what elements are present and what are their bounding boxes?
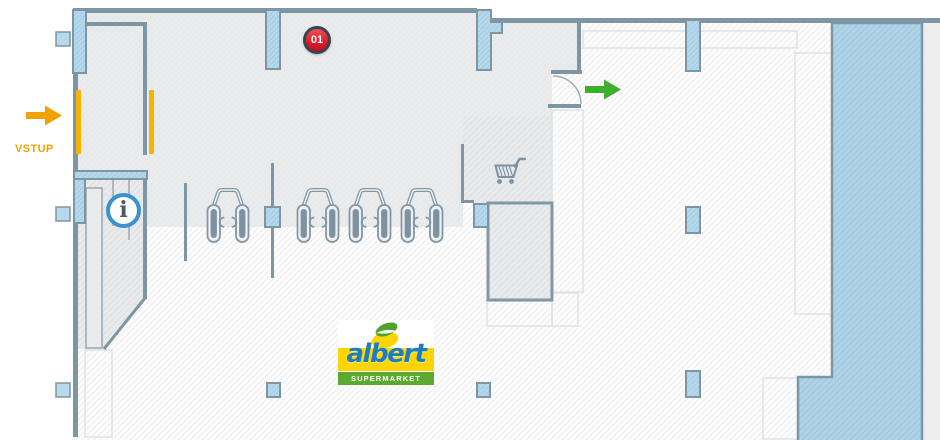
info-desk-wall	[143, 179, 147, 299]
exit-door-wall	[577, 23, 581, 71]
info-desk-wall-blue	[74, 171, 147, 179]
exit-door-stub-bottom	[548, 104, 581, 108]
structural-pillar	[686, 20, 700, 71]
cart-zone	[463, 117, 552, 203]
exterior-columns	[56, 32, 70, 397]
entrance-label: VSTUP	[15, 143, 75, 155]
structural-pillar	[474, 204, 488, 227]
structural-pillar	[477, 383, 490, 397]
logo-tagline-text: SUPERMARKET	[338, 372, 434, 385]
logo-brand-text: albert	[338, 339, 434, 369]
structural-pillar	[73, 10, 86, 73]
vestibule-wall-top	[84, 22, 146, 26]
structural-pillar	[686, 207, 700, 233]
wall-top-right	[490, 18, 940, 23]
albert-logo: albert SUPERMARKET	[338, 320, 434, 386]
floorplan-canvas	[0, 0, 940, 440]
vestibule-wall-right	[143, 22, 147, 155]
info-desk-counter	[86, 188, 102, 348]
structural-pillar	[267, 383, 280, 397]
structural-pillar	[265, 207, 280, 227]
structural-pillar	[266, 10, 280, 69]
store-floorplan: VSTUP 01 i albert SUPERMARKET	[0, 0, 940, 440]
entrance-gate	[76, 90, 81, 154]
exterior-column	[56, 32, 70, 46]
info-icon: i	[106, 193, 141, 228]
outside-top	[477, 8, 940, 18]
exterior-column	[56, 383, 70, 397]
exterior-column	[56, 207, 70, 221]
checkout-badge[interactable]: 01	[303, 26, 331, 54]
entrance-arrow-icon	[26, 106, 62, 126]
queue-rail	[184, 183, 187, 261]
cart-corral	[488, 203, 552, 300]
info-desk-wall-blue	[74, 179, 85, 223]
exit-door-stub-top	[551, 70, 582, 74]
outside-right-band	[923, 21, 940, 440]
structural-pillar	[686, 371, 700, 397]
entrance-gate	[149, 90, 154, 154]
